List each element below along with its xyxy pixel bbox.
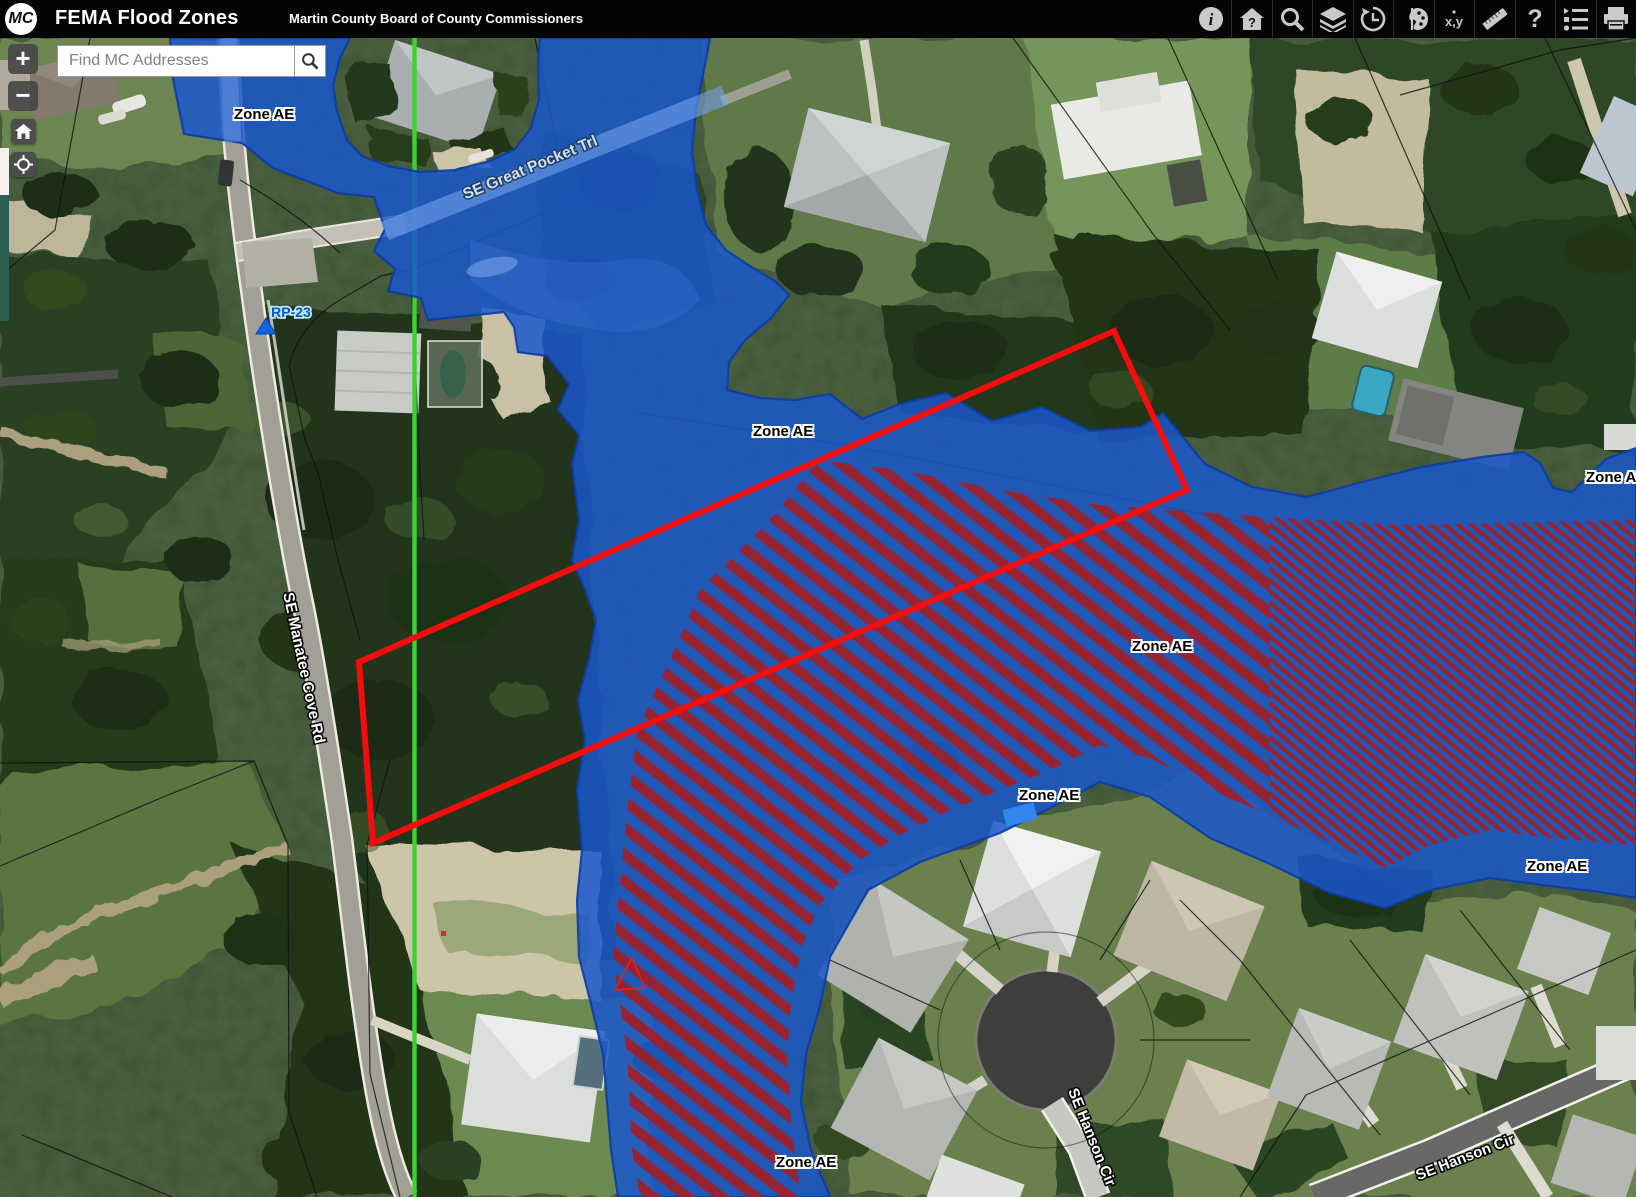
svg-text:x,y: x,y bbox=[1445, 14, 1464, 29]
svg-text:RP-23: RP-23 bbox=[271, 304, 311, 320]
svg-text:i: i bbox=[1208, 10, 1213, 29]
svg-text:?: ? bbox=[1248, 15, 1256, 30]
svg-text:?: ? bbox=[1528, 6, 1543, 32]
